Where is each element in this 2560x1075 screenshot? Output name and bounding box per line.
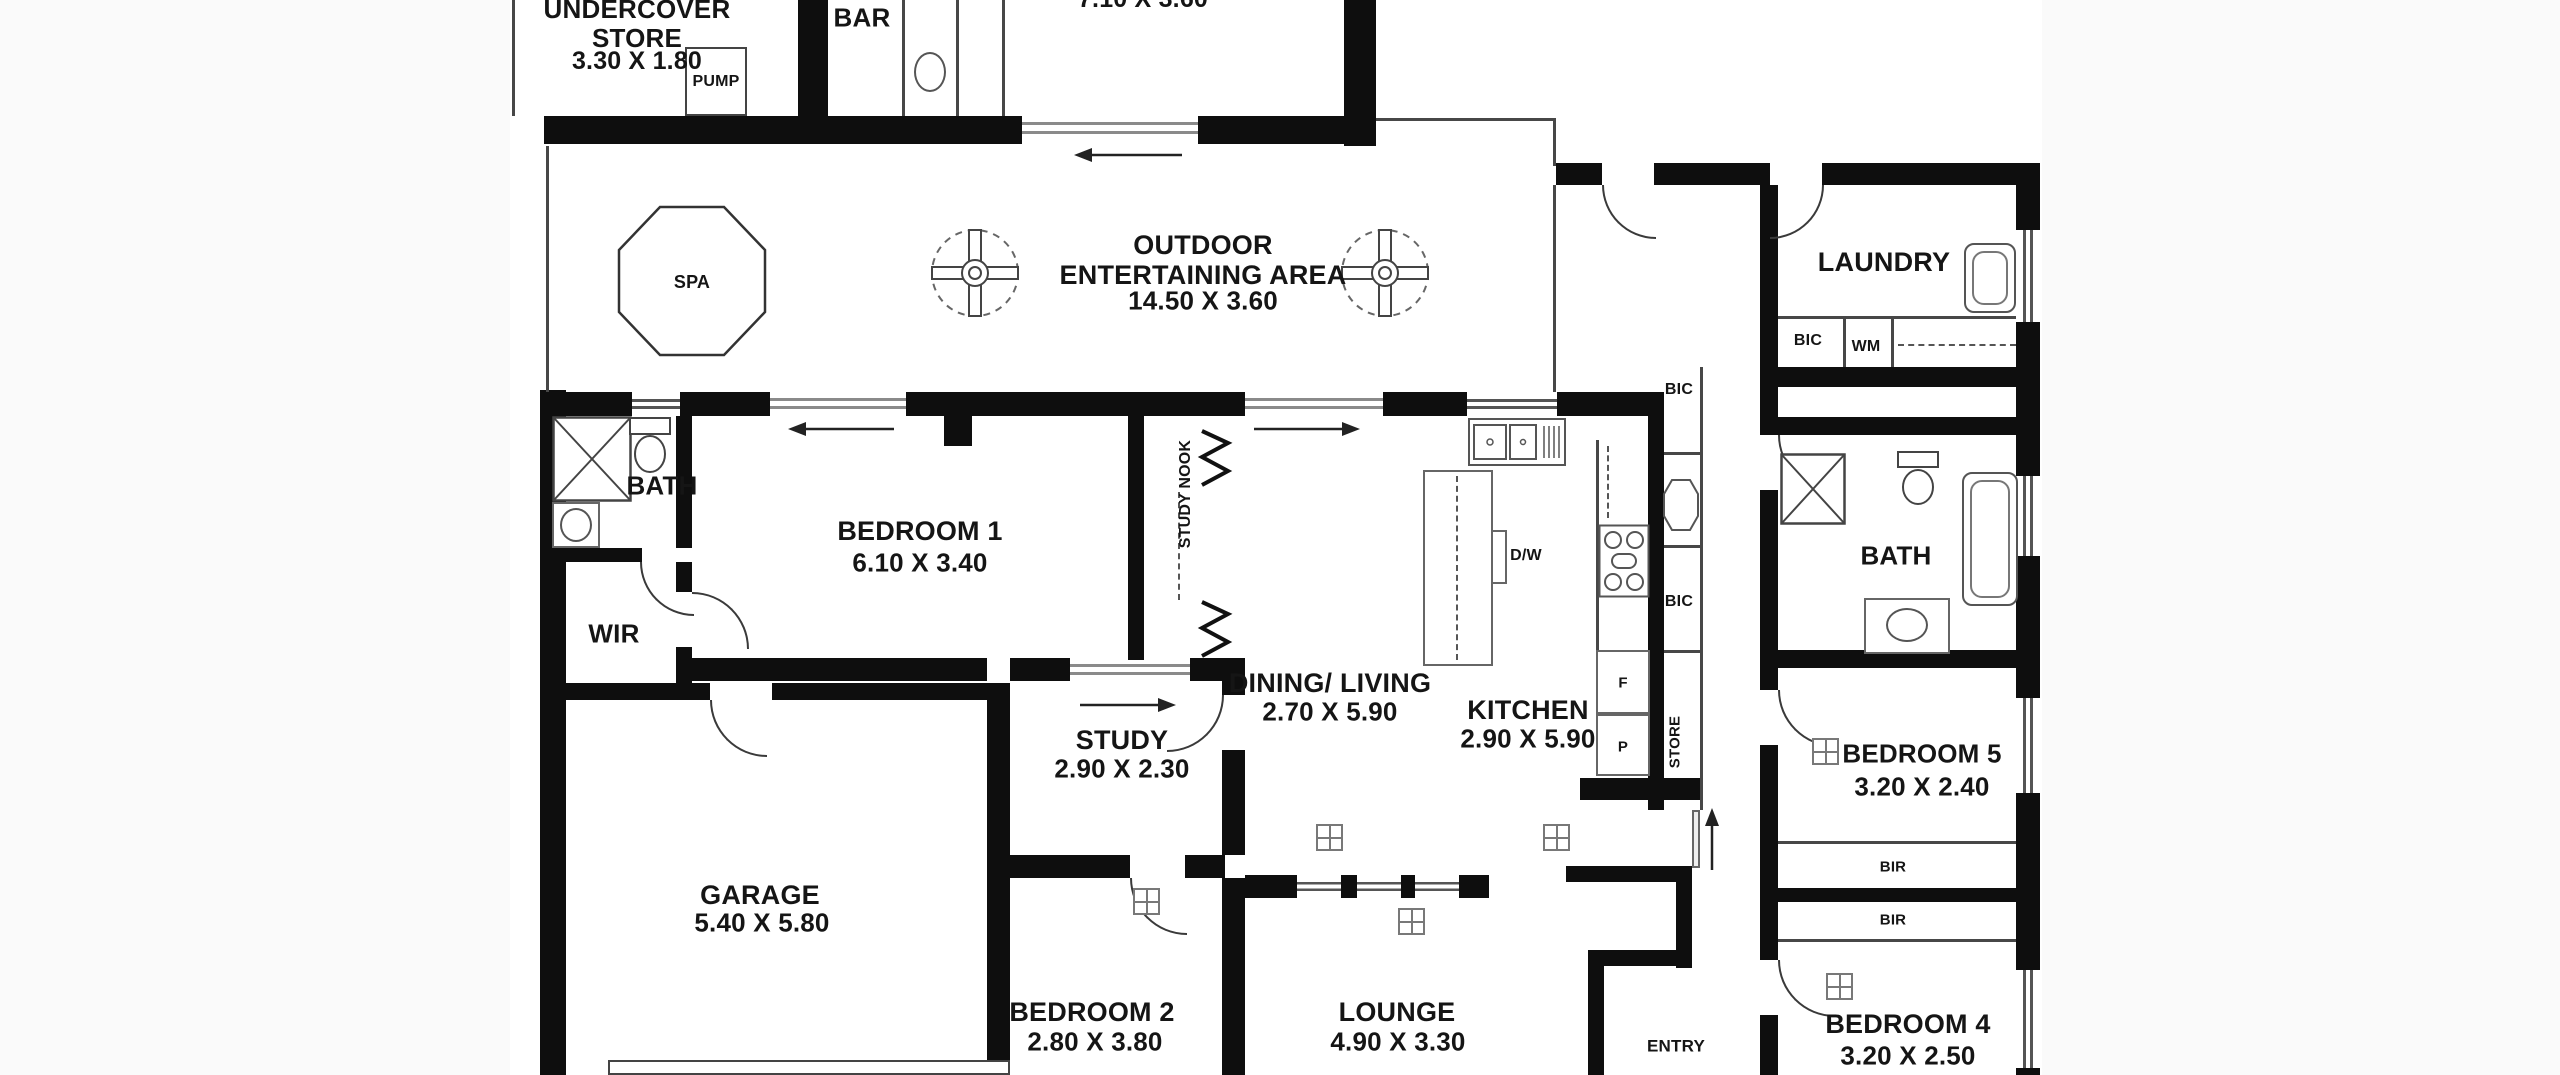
- wall: [1822, 163, 2040, 185]
- wall: [1185, 855, 1225, 878]
- wall: [1760, 367, 2040, 387]
- sliding-door-track: [1022, 131, 1198, 134]
- wall: [692, 658, 987, 681]
- room-label-bath-right: BATH: [1860, 541, 1931, 570]
- room-label-laundry: LAUNDRY: [1818, 247, 1950, 277]
- window: [2016, 698, 2040, 793]
- dim-label-lounge: 4.90 X 3.30: [1330, 1027, 1465, 1056]
- wall: [1654, 163, 1770, 185]
- wall: [1010, 658, 1070, 681]
- room-label-bedroom5: BEDROOM 5: [1842, 739, 2001, 768]
- island-bench: [1423, 470, 1493, 666]
- cupboard-divider: [1664, 545, 1700, 548]
- wall: [987, 683, 1010, 1075]
- slide-arrow-right-icon: [1252, 418, 1362, 440]
- cooktop-icon: [1598, 524, 1650, 598]
- bench-dashed-line: [1898, 344, 2016, 346]
- room-label-entry: ENTRY: [1647, 1036, 1705, 1055]
- dim-label-undercover-store: 3.30 X 1.80: [572, 47, 702, 75]
- wall: [1760, 387, 1778, 435]
- wall: [1383, 392, 1467, 416]
- window: [1297, 875, 1341, 898]
- slide-arrow-left-icon: [786, 418, 896, 440]
- wall: [1580, 778, 1700, 800]
- wall: [540, 392, 632, 416]
- wall: [1245, 875, 1297, 898]
- fixture-label-bir: BIR: [1880, 860, 1906, 877]
- wall: [676, 647, 692, 683]
- slide-arrow-right-icon: [1078, 694, 1178, 716]
- fixture-label-store: STORE: [1668, 716, 1685, 768]
- window: [2016, 476, 2040, 556]
- sliding-door-track: [1070, 664, 1190, 667]
- bar-counter-line: [902, 0, 905, 116]
- robe-line: [1778, 841, 2016, 844]
- hall-basin-icon: [1662, 478, 1700, 532]
- laundry-bench-line: [1778, 316, 2016, 319]
- dim-label-outdoor: 14.50 X 3.60: [1128, 286, 1278, 315]
- fixture-label-wm: WM: [1852, 338, 1881, 356]
- fixture-label-pump: PUMP: [692, 73, 739, 91]
- wall: [1760, 888, 2016, 902]
- wall: [544, 116, 1022, 144]
- wall: [972, 392, 1245, 416]
- ceiling-vent-icon: [1812, 738, 1839, 765]
- room-label-bedroom4: BEDROOM 4: [1825, 1009, 1990, 1039]
- wall-thin: [546, 146, 549, 392]
- toilet-icon: [628, 416, 672, 476]
- wall: [540, 548, 642, 562]
- fixture-label-bic: BIC: [1665, 593, 1693, 611]
- wall: [1190, 658, 1225, 681]
- sliding-door-track: [770, 398, 906, 401]
- wall: [1778, 417, 2018, 435]
- dim-label-bedroom1: 6.10 X 3.40: [852, 548, 987, 577]
- wall: [1222, 878, 1245, 1075]
- dim-label-dining-living: 2.70 X 5.90: [1262, 697, 1397, 726]
- toilet-icon: [1896, 450, 1940, 508]
- dim-label-study: 2.90 X 2.30: [1054, 754, 1189, 783]
- wall: [1760, 490, 1778, 690]
- floor-plan: UNDERCOVER STORE 3.30 X 1.80 PUMP BAR 7.…: [0, 0, 2560, 1075]
- window: [1415, 875, 1459, 898]
- ceiling-vent-icon: [1133, 888, 1160, 915]
- window: [2016, 230, 2040, 322]
- fixture-label-bir: BIR: [1880, 913, 1906, 930]
- laundry-trough-icon: [1964, 243, 2016, 313]
- wall-thin: [512, 0, 515, 116]
- basin-icon: [1886, 608, 1928, 642]
- room-label-lounge: LOUNGE: [1339, 997, 1456, 1027]
- wall: [1341, 875, 1357, 898]
- shower-icon: [552, 416, 632, 502]
- wall-thin: [1002, 0, 1005, 116]
- bar-sink-icon: [914, 52, 946, 92]
- bench-dashed-line: [1456, 476, 1458, 660]
- room-label-dining-living: DINING/ LIVING: [1229, 668, 1431, 698]
- room-label-wir: WIR: [588, 619, 639, 648]
- shower-icon: [1780, 453, 1846, 525]
- room-label-study-nook: STUDY NOOK: [1177, 440, 1195, 548]
- dim-label-bedroom2: 2.80 X 3.80: [1027, 1027, 1162, 1056]
- fixture-label-fridge: F: [1618, 676, 1627, 693]
- wall: [906, 392, 972, 416]
- wall: [1556, 163, 1602, 185]
- wall: [772, 683, 1010, 700]
- wall-thin: [1553, 185, 1556, 392]
- wall: [1128, 392, 1144, 660]
- desk-zigzag-icon: [1198, 598, 1234, 660]
- wall: [1588, 950, 1604, 1075]
- bench-dashed-line: [1607, 446, 1609, 518]
- wall: [944, 416, 972, 446]
- desk-zigzag-icon: [1198, 427, 1234, 489]
- ceiling-vent-icon: [1826, 973, 1853, 1000]
- robe-line: [1778, 939, 2016, 942]
- wall-thin: [1376, 118, 1556, 121]
- entry-arrow-up-icon: [1700, 806, 1724, 872]
- kitchen-sink-icon: [1468, 418, 1566, 466]
- wall: [1010, 855, 1130, 878]
- wall: [798, 0, 828, 116]
- slide-arrow-left-icon: [1072, 144, 1184, 166]
- ceiling-fan-icon: [929, 227, 1021, 319]
- dim-label-kitchen: 2.90 X 5.90: [1460, 724, 1595, 753]
- ceiling-fan-icon: [1339, 227, 1431, 319]
- fixture-label-bic: BIC: [1794, 332, 1822, 350]
- ceiling-vent-icon: [1316, 824, 1343, 851]
- wall: [680, 392, 770, 416]
- basin-icon: [560, 508, 592, 542]
- window: [1467, 392, 1557, 416]
- sliding-door-track: [1245, 398, 1383, 401]
- window: [632, 392, 680, 416]
- room-label-undercover-store: UNDERCOVER STORE: [544, 0, 731, 53]
- room-label-outdoor: OUTDOOR ENTERTAINING AREA: [1060, 230, 1347, 290]
- garage-door: [608, 1060, 1010, 1075]
- sliding-door-track: [1245, 406, 1383, 409]
- bar-counter-line: [956, 0, 959, 116]
- sliding-door-track: [1070, 672, 1190, 675]
- sliding-door-track: [770, 406, 906, 409]
- fixture-label-spa: SPA: [674, 272, 710, 292]
- wall: [1401, 875, 1415, 898]
- wall: [1198, 116, 1376, 144]
- wall: [1760, 745, 1778, 960]
- cupboard-divider: [1664, 452, 1700, 455]
- dim-label-top-room: 7.10 X 3.60: [1078, 0, 1208, 13]
- dim-label-bedroom5: 3.20 X 2.40: [1854, 772, 1989, 801]
- wall: [1648, 392, 1664, 810]
- window: [1357, 875, 1401, 898]
- laundry-bench-divider: [1891, 316, 1894, 367]
- wall: [540, 683, 710, 700]
- wall: [1760, 1015, 1778, 1075]
- room-label-bedroom1: BEDROOM 1: [837, 516, 1002, 546]
- cupboard-divider: [1664, 650, 1700, 653]
- fixture-label-dishwasher: D/W: [1510, 547, 1542, 565]
- dim-label-garage: 5.40 X 5.80: [694, 908, 829, 937]
- fixture-label-bic: BIC: [1665, 381, 1693, 399]
- wall-thin: [1553, 121, 1556, 166]
- room-label-study: STUDY: [1076, 725, 1169, 755]
- sliding-door-track: [1022, 122, 1198, 125]
- fixture-label-pantry: P: [1618, 740, 1628, 757]
- room-label-garage: GARAGE: [700, 880, 820, 910]
- bathtub-icon: [1962, 472, 2018, 606]
- dishwasher-box: [1491, 530, 1507, 584]
- wall-thin: [1700, 367, 1703, 810]
- room-label-bar: BAR: [834, 3, 891, 32]
- room-label-bath-left: BATH: [626, 471, 697, 500]
- room-label-kitchen: KITCHEN: [1467, 695, 1588, 725]
- laundry-bench-divider: [1843, 316, 1846, 367]
- ceiling-vent-icon: [1398, 908, 1425, 935]
- wall: [1222, 750, 1245, 855]
- entry-door-leaf: [1692, 810, 1700, 868]
- wall: [1557, 392, 1664, 416]
- dim-label-bedroom4: 3.20 X 2.50: [1840, 1041, 1975, 1070]
- room-label-bedroom2: BEDROOM 2: [1009, 997, 1174, 1027]
- wall: [1566, 866, 1690, 882]
- window: [2016, 970, 2040, 1068]
- ceiling-vent-icon: [1543, 824, 1570, 851]
- wall: [1459, 875, 1489, 898]
